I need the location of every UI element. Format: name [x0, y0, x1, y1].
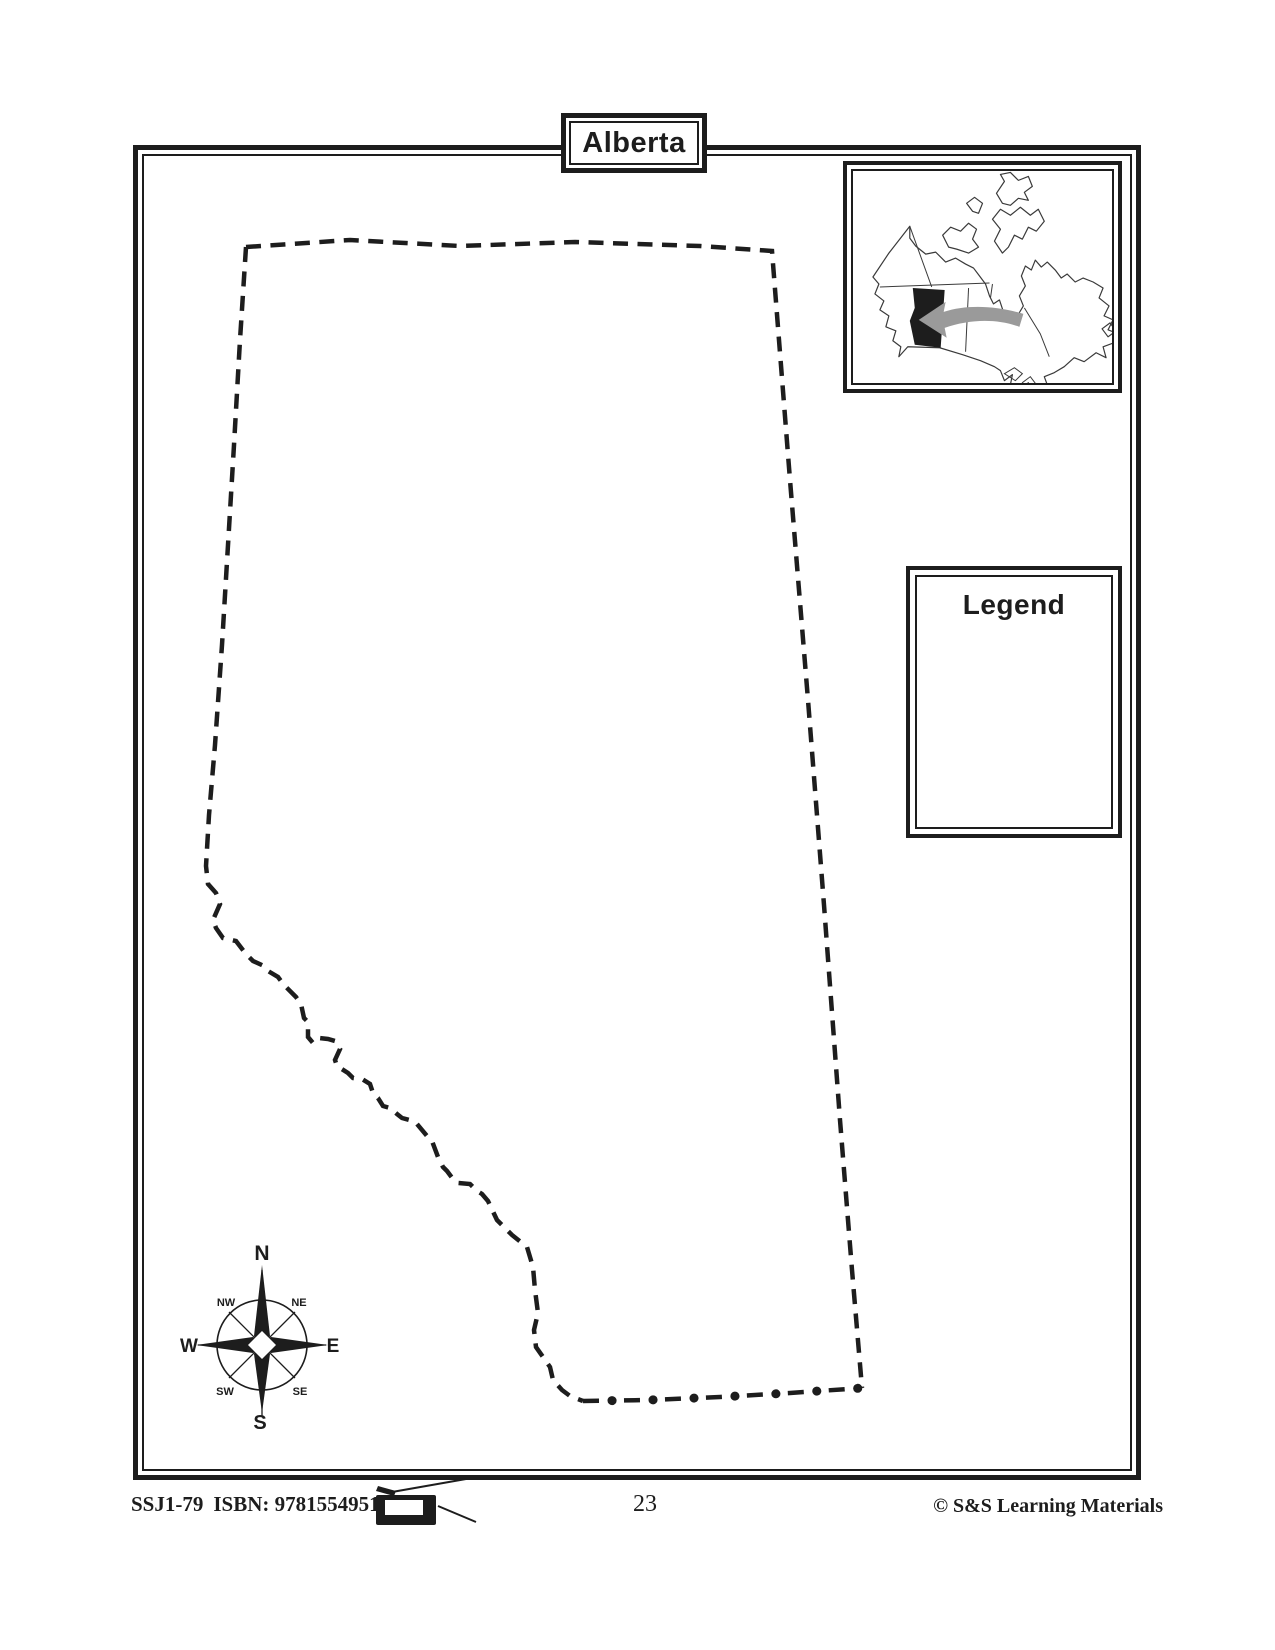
copier-output-line: [438, 1506, 476, 1522]
footer-copyright: © S&S Learning Materials: [933, 1495, 1163, 1518]
compass-label-sw: SW: [216, 1386, 234, 1398]
product-code: SSJ1-79: [131, 1492, 203, 1516]
worksheet-page: Alberta: [0, 0, 1275, 1650]
compass-label-nw: NW: [217, 1297, 236, 1309]
copier-lid-line: [392, 1479, 466, 1492]
border-yukon: [910, 226, 932, 287]
canada-mainland-outline: [873, 226, 1114, 385]
compass-label-n: N: [254, 1242, 269, 1265]
compass-rose-icon: N NW NE W E SW SE S: [175, 1232, 350, 1437]
photocopier-icon: [368, 1472, 483, 1534]
legend-box-inner: Legend: [915, 575, 1113, 829]
canada-locator-box: [843, 161, 1122, 393]
map-title-box-inner: Alberta: [569, 121, 699, 165]
canada-locator-map: [853, 171, 1114, 385]
compass-label-ne: NE: [291, 1297, 306, 1309]
legend-box: Legend: [906, 566, 1122, 838]
page-title: Alberta: [582, 127, 685, 160]
arctic-island-2: [992, 207, 1044, 253]
compass-label-se: SE: [293, 1386, 308, 1398]
legend-title: Legend: [917, 589, 1111, 621]
arctic-island-3: [996, 172, 1032, 205]
great-lake-2: [1022, 377, 1036, 385]
canada-locator-inner: [851, 169, 1114, 385]
compass-label-w: W: [180, 1336, 198, 1357]
copier-window: [385, 1500, 423, 1515]
border-60th-parallel: [880, 283, 990, 287]
page-number: 23: [600, 1491, 690, 1518]
compass-label-e: E: [327, 1336, 340, 1357]
arctic-island-1: [943, 223, 979, 253]
map-title-box: Alberta: [561, 113, 707, 173]
compass-label-s: S: [253, 1412, 266, 1434]
arctic-island-4: [967, 197, 983, 213]
border-on-qc: [1024, 308, 1049, 357]
border-mb-on: [990, 284, 992, 298]
